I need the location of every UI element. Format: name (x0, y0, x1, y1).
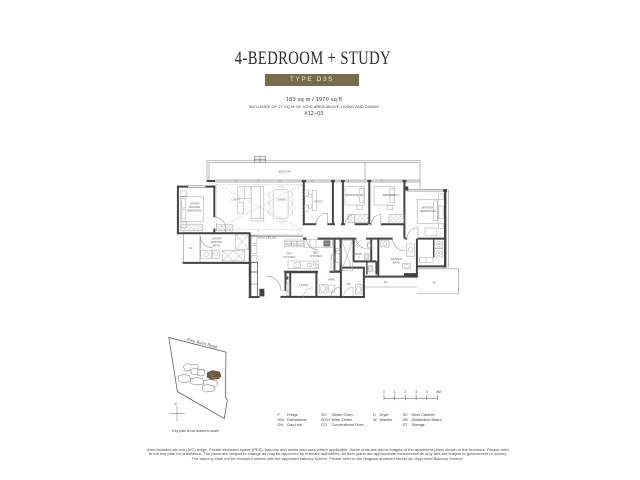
svg-text:BEDROOM: BEDROOM (421, 209, 435, 213)
svg-text:STUDY: STUDY (314, 199, 323, 203)
svg-text:BALCONY: BALCONY (279, 169, 292, 173)
svg-text:BEDROOM 3: BEDROOM 3 (383, 193, 400, 197)
svg-text:KITCHEN: KITCHEN (310, 254, 322, 258)
svg-text:YARD: YARD (328, 278, 335, 282)
svg-text:BEDROOM: BEDROOM (188, 209, 202, 213)
svg-text:WET: WET (313, 251, 319, 255)
svg-text:WCH: WCH (286, 244, 292, 246)
svg-text:HS: HS (347, 282, 351, 286)
svg-text:SO: SO (293, 244, 296, 246)
svg-text:1: 1 (394, 390, 396, 394)
svg-text:AC: AC (433, 280, 437, 284)
svg-text:AC: AC (189, 246, 193, 250)
svg-text:MASTER: MASTER (422, 206, 433, 210)
svg-text:DINING: DINING (277, 198, 287, 202)
svg-text:HIGH CEILING: HIGH CEILING (258, 235, 276, 239)
svg-text:BATH: BATH (213, 244, 220, 248)
svg-text:AC: AC (384, 280, 388, 284)
svg-text:STORE: STORE (299, 283, 308, 287)
svg-text:MASTER: MASTER (211, 240, 222, 244)
svg-text:W: W (438, 243, 441, 246)
svg-text:N: N (174, 402, 177, 406)
svg-text:4: 4 (426, 390, 428, 394)
svg-text:5M: 5M (436, 390, 441, 394)
svg-text:LIVING: LIVING (231, 198, 240, 202)
svg-text:BATH: BATH (355, 252, 362, 256)
svg-text:KITCHEN: KITCHEN (284, 255, 296, 259)
svg-text:D: D (438, 252, 440, 255)
svg-text:BEDROOM 4: BEDROOM 4 (345, 193, 362, 197)
svg-text:2: 2 (404, 390, 406, 394)
svg-text:3: 3 (415, 390, 417, 394)
svg-text:CO: CO (298, 244, 302, 246)
svg-text:MASTER: MASTER (391, 257, 402, 261)
svg-text:DRY: DRY (287, 252, 293, 256)
svg-text:BATH: BATH (393, 261, 400, 265)
svg-text:JUNIOR: JUNIOR (189, 202, 199, 206)
svg-text:AC/RF: AC/RF (251, 283, 258, 286)
svg-text:JUNIOR: JUNIOR (211, 237, 221, 241)
svg-text:0: 0 (383, 390, 385, 394)
svg-text:MASTER: MASTER (189, 205, 200, 209)
svg-text:3: 3 (358, 256, 360, 260)
